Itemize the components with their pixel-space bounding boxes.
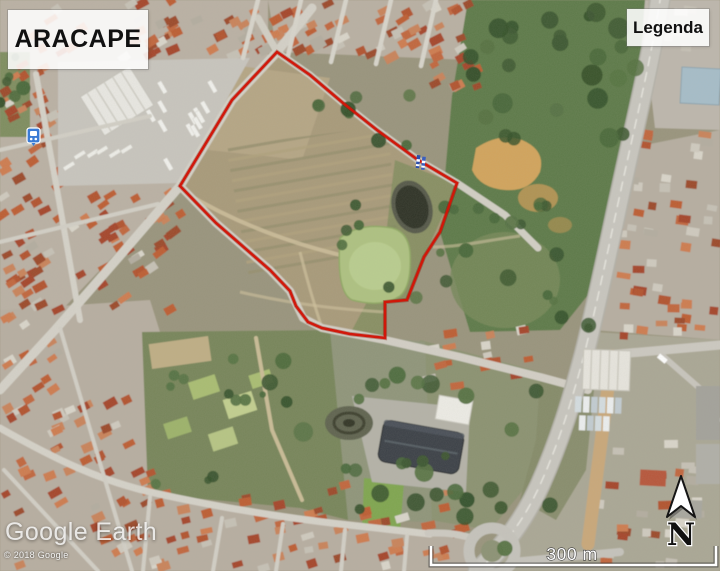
google-earth-watermark: Google Earth	[5, 518, 157, 547]
satellite-map-canvas: 300 m N	[0, 0, 720, 571]
image-grain	[0, 0, 720, 571]
legend-title-box: Legenda	[627, 9, 709, 46]
copyright-text: © 2018 Google	[4, 550, 69, 560]
legend-title: Legenda	[633, 18, 703, 38]
map-title: ARACAPE	[14, 25, 141, 54]
map-figure: 300 m N ARACAPE Legenda Google Earth © 2…	[0, 0, 720, 571]
map-title-box: ARACAPE	[8, 10, 148, 69]
north-label: N	[667, 517, 695, 553]
scale-bar-label: 300 m	[546, 544, 597, 564]
bus-stop-icon	[27, 128, 40, 146]
